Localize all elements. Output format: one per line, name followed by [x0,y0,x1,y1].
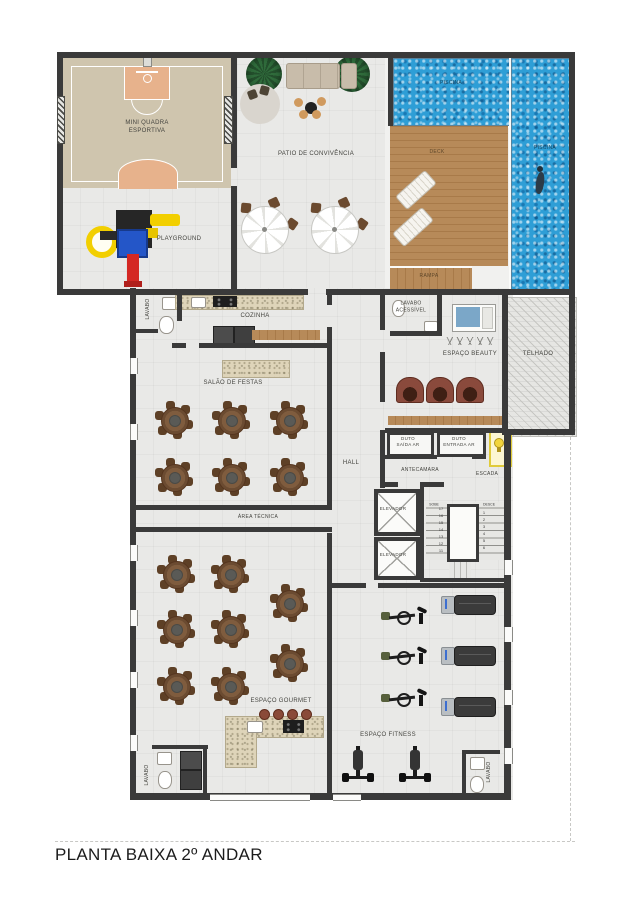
curtain-zigzag [446,337,494,345]
salon-chair [456,377,484,403]
massage-bed-mattress [456,307,480,327]
wall [462,750,500,754]
bench-pad [410,750,420,770]
table-centerpiece [169,415,181,427]
wall [332,583,366,588]
stair-number-up: 14 [439,528,443,532]
treadmill-display [445,599,447,609]
wall [327,533,332,793]
stair-number-down: 2 [483,518,485,522]
court-side-screen [57,96,65,144]
label-lavabo-gourmet: LAVABO [144,764,151,785]
bike-post [419,613,423,624]
elevator-shaft [374,489,420,536]
window-marker [504,690,513,705]
wall [388,58,393,126]
lamp-stem [497,447,501,452]
wall [136,505,332,510]
umbrella-pin [332,227,337,232]
label-elevador-2: ELEVADOR [380,552,407,558]
elevator-shaft [374,537,420,580]
label-desce: DESCE [483,503,495,507]
dining-table [155,401,193,439]
stove-cooktop [213,296,237,307]
wall [130,793,511,800]
label-deck: DECK [429,149,444,156]
wall [327,327,332,510]
label-espaco-fitness: ESPAÇO FITNESS [360,732,416,740]
label-duto-saida: DUTO SAÍDA AR [397,436,420,448]
stair-number-down: 5 [483,539,485,543]
exercise-bike [381,688,429,708]
treadmill-belt-line [459,705,491,706]
label-salao-festas: SALÃO DE FESTAS [203,380,262,388]
wall [437,295,442,331]
label-hall: HALL [343,460,359,468]
wall [420,487,424,582]
beauty-shelf [388,416,502,425]
wall [569,52,575,435]
wall [380,430,385,488]
treadmill [441,696,495,716]
salon-chair [396,377,424,403]
stair-landing [447,504,479,562]
barbell-plate [342,773,349,782]
wall [380,352,385,402]
wall [231,186,237,295]
barbell-plate [424,773,431,782]
wall [502,295,508,435]
treadmill-console [441,596,455,614]
dining-table [211,555,249,593]
label-rampa: RAMPA [420,273,439,280]
stair-number-down: 1 [483,511,485,515]
sink [470,757,485,770]
wall [504,429,511,800]
floorplan-page: MINI QUADRA ESPORTIVA PLAYGROUND PATIO D… [0,0,636,900]
stair-number-down: 4 [483,532,485,536]
label-piscina-top: PISCINA [440,80,462,87]
dining-table [157,555,195,593]
pouf [299,110,308,119]
wall [199,343,327,348]
label-lavabo-cozinha: LAVABO [145,298,152,319]
treadmill-belt-line [459,603,491,604]
wall [57,52,63,295]
bar-stool [273,709,284,720]
dining-table [212,401,250,439]
buffet-counter [222,360,290,378]
wall [172,343,186,348]
window-marker [333,794,361,801]
label-patio: PATIO DE CONVIVÊNCIA [278,151,354,159]
wall [152,745,208,749]
toilet [159,316,174,334]
wall [462,750,466,797]
bike-wheel [397,611,411,625]
kitchen-sink [191,297,206,308]
label-lavabo-acessivel: LAVABO ACESSÍVEL [396,301,427,314]
pouf [312,110,321,119]
stair-lower-flight [449,560,471,578]
stair-number-up: 12 [439,542,443,546]
stair-treads-left [426,502,447,560]
print-margin-dashed-vertical [570,437,571,841]
bike-wheel [397,693,411,707]
wall [380,295,385,330]
label-cozinha: COZINHA [240,313,269,321]
wall [177,289,182,321]
wall [136,289,308,295]
table-centerpiece [171,681,183,693]
cabinet [180,770,202,790]
wall [505,429,575,435]
treadmill [441,594,495,614]
stair-number-up: 13 [439,535,443,539]
swimmer-head [537,166,543,172]
label-lavabo-fitness: LAVABO [486,761,493,782]
table-centerpiece [284,415,296,427]
table-centerpiece [171,569,183,581]
wall [385,428,502,433]
plan-title: PLANTA BAIXA 2º ANDAR [55,845,263,865]
massage-bed-pillow [482,307,493,329]
dining-table [270,458,308,496]
table-centerpiece [284,658,296,670]
treadmill-display [445,701,447,711]
dining-table [212,458,250,496]
treadmill-belt [454,646,496,666]
label-duto-entrada: DUTO ENTRADA AR [443,436,475,448]
sofa [286,63,340,89]
window-marker [130,424,138,440]
window-marker [504,560,513,575]
bench-pad [353,750,363,770]
label-piscina-right: PISCINA [534,145,556,152]
court-side-screen [224,96,233,144]
label-telhado: TELHADO [523,351,553,359]
label-espaco-gourmet: ESPAÇO GOURMET [250,698,311,706]
gourmet-stove [283,720,304,733]
dining-table [211,667,249,705]
window-marker [130,735,138,751]
treadmill-console [441,698,455,716]
table-centerpiece [171,624,183,636]
sink [157,752,172,765]
window-marker [130,358,138,374]
label-escada: ESCADA [476,471,498,478]
playground-yellow-bar [150,214,180,226]
treadmill-display [445,650,447,660]
wall [136,527,332,532]
window-marker [130,672,138,688]
barbell-plate [399,773,406,782]
label-mini-quadra: MINI QUADRA ESPORTIVA [125,120,168,136]
dining-table [155,458,193,496]
exercise-bike [381,606,429,626]
table-centerpiece [225,569,237,581]
treadmill-console [441,647,455,665]
treadmill-belt [454,595,496,615]
bike-post [419,653,423,664]
bike-wheel [397,651,411,665]
wall [380,482,398,487]
wall [136,329,158,333]
pouf [317,97,326,106]
table-centerpiece [226,415,238,427]
table-centerpiece [225,624,237,636]
dining-table [157,667,195,705]
wall [327,289,332,305]
table-centerpiece [284,598,296,610]
wall [326,289,575,295]
stair-number-up: 15 [439,521,443,525]
wall [57,52,575,58]
table-centerpiece [225,681,237,693]
weight-bench [399,744,431,786]
table-centerpiece [284,472,296,484]
playground-slide [127,254,139,284]
umbrella-pin [262,227,267,232]
armchair [341,63,357,89]
playground-slide-foot [124,281,142,287]
pouf [294,98,303,107]
treadmill-belt-line [459,654,491,655]
wall [385,455,437,459]
label-espaco-beauty: ESPAÇO BEAUTY [443,351,497,359]
bike-post [419,695,423,706]
barbell-plate [367,773,374,782]
label-sobe: SOBE [429,503,439,507]
salon-chair [426,377,454,403]
gourmet-sink [247,721,263,733]
treadmill-belt [454,697,496,717]
label-antecamara: ANTECAMARA [401,467,439,474]
wall [203,745,207,797]
basketball-hoop-icon [143,74,152,83]
dining-table [211,610,249,648]
telhado-roof-surface [505,297,577,437]
dining-table [270,401,308,439]
wall [472,455,486,459]
print-margin-dashed-horizontal [55,841,575,842]
toilet [158,771,172,789]
label-playground: PLAYGROUND [157,236,202,244]
toilet [470,776,484,793]
stair-number-up: 16 [439,514,443,518]
label-elevador-1: ELEVADOR [380,506,407,512]
weight-bench [342,744,374,786]
cabinet [180,751,202,770]
table-centerpiece [226,472,238,484]
bar-stool [287,709,298,720]
dining-table [157,610,195,648]
window-marker [210,794,310,801]
treadmill [441,645,495,665]
exercise-bike [381,646,429,666]
stair-number-down: 6 [483,546,485,550]
window-marker [504,748,513,764]
window-marker [130,545,138,561]
stair-number-up: 11 [439,549,443,553]
backboard [136,71,158,73]
center-arc [118,159,178,189]
dining-table [270,644,308,682]
stair-number-up: 17 [439,507,443,511]
wall [390,331,442,336]
label-area-tecnica: ÁREA TÉCNICA [238,514,278,521]
wall [378,583,511,588]
window-marker [130,610,138,626]
kitchen-wood-table [252,330,320,340]
wall [420,578,508,582]
table-centerpiece [169,472,181,484]
bar-stool [301,709,312,720]
bar-stool [259,709,270,720]
stair-number-down: 3 [483,525,485,529]
dining-table [270,584,308,622]
window-marker [504,627,513,642]
